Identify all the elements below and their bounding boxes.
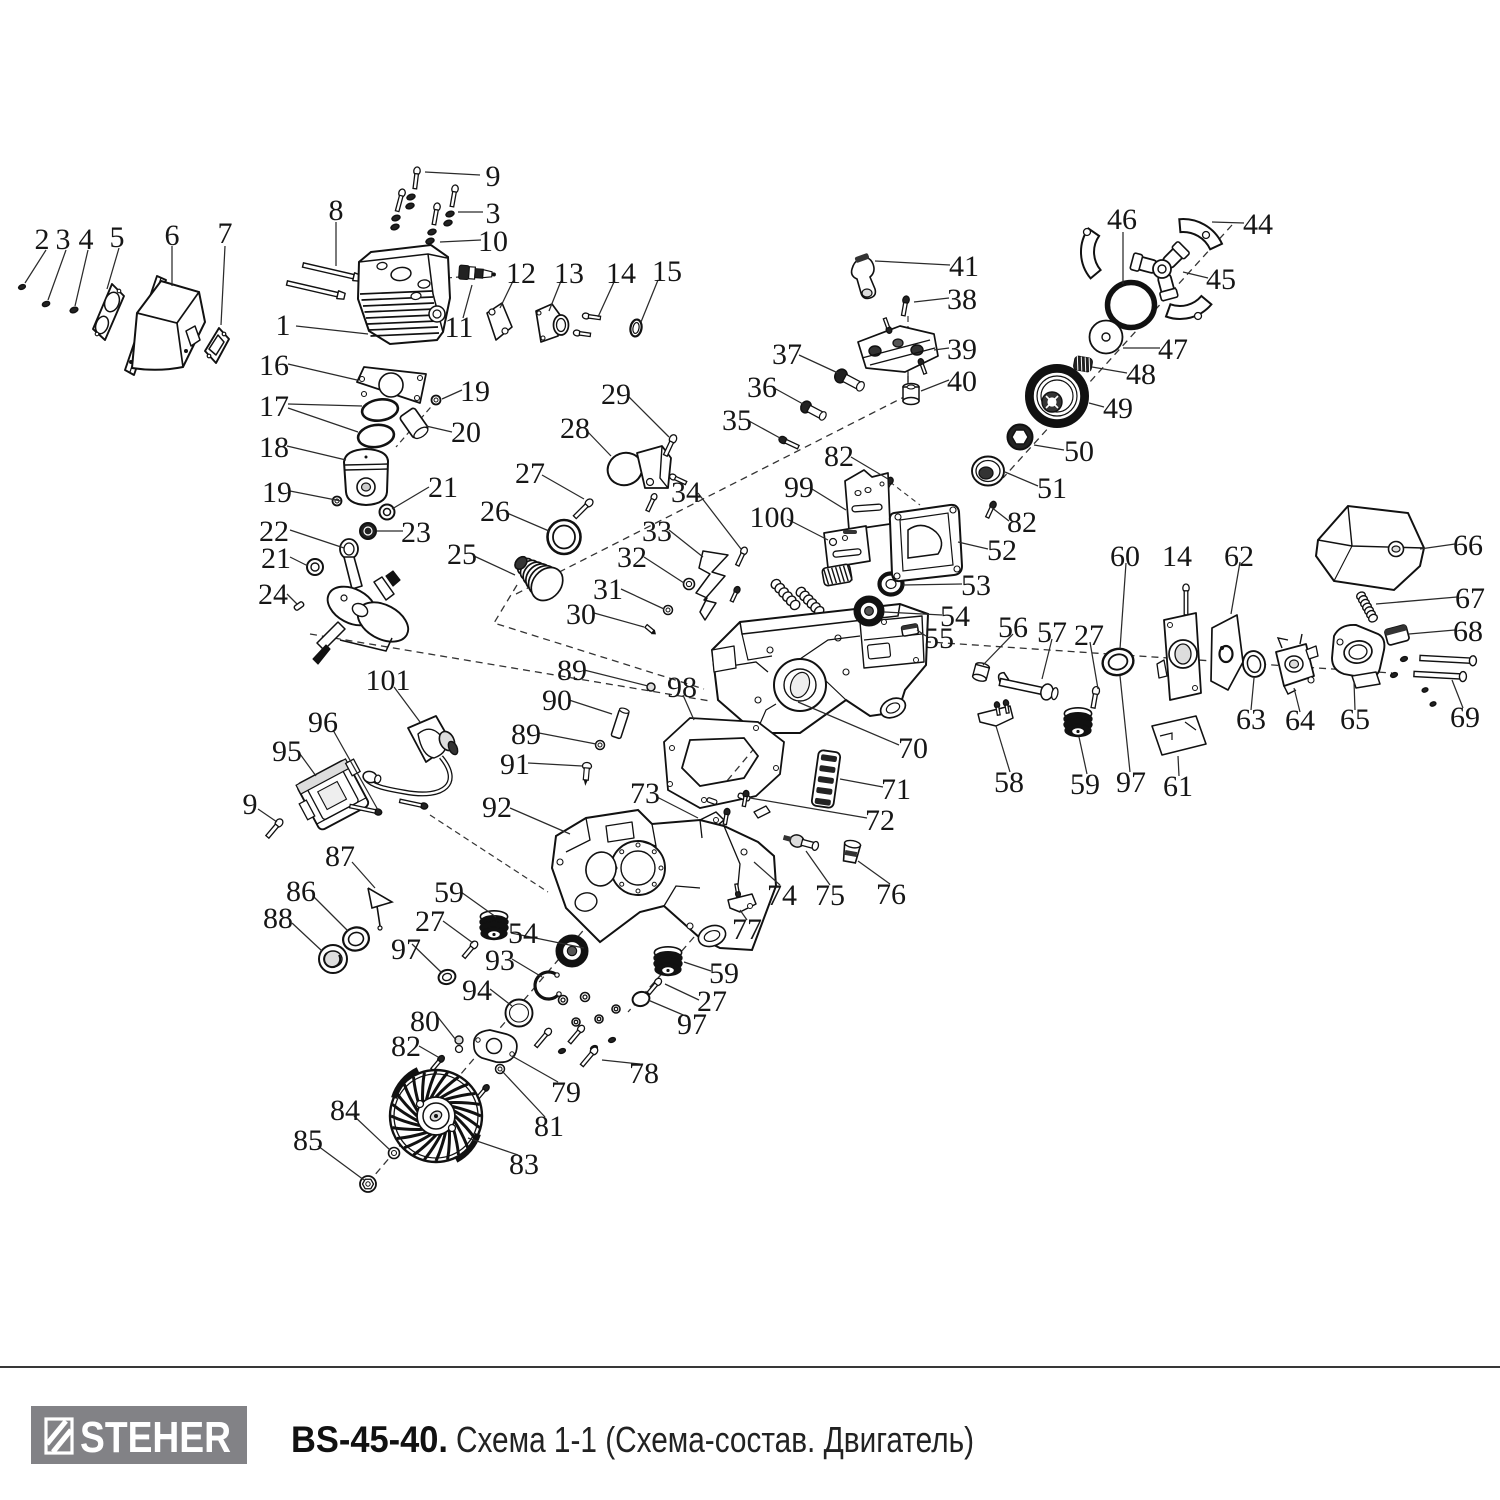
svg-text:53: 53: [961, 569, 991, 602]
svg-text:89: 89: [511, 718, 541, 751]
svg-text:99: 99: [784, 471, 814, 504]
svg-text:76: 76: [876, 878, 906, 911]
svg-text:85: 85: [293, 1124, 323, 1157]
svg-text:9: 9: [243, 788, 258, 821]
svg-text:34: 34: [671, 476, 701, 509]
svg-text:65: 65: [1340, 703, 1370, 736]
svg-text:9: 9: [486, 160, 501, 193]
svg-text:101: 101: [366, 664, 411, 697]
svg-text:1: 1: [276, 309, 291, 342]
svg-text:15: 15: [652, 255, 682, 288]
svg-text:11: 11: [445, 311, 474, 344]
svg-text:25: 25: [447, 538, 477, 571]
svg-text:91: 91: [500, 748, 530, 781]
svg-text:89: 89: [557, 654, 587, 687]
svg-text:41: 41: [949, 250, 979, 283]
svg-text:51: 51: [1037, 472, 1067, 505]
svg-text:58: 58: [994, 766, 1024, 799]
svg-text:71: 71: [881, 773, 911, 806]
svg-text:97: 97: [1116, 766, 1146, 799]
svg-text:55: 55: [924, 622, 954, 655]
svg-text:8: 8: [329, 194, 344, 227]
svg-text:66: 66: [1453, 529, 1483, 562]
svg-text:47: 47: [1158, 333, 1188, 366]
svg-text:78: 78: [629, 1057, 659, 1090]
svg-text:6: 6: [165, 219, 180, 252]
svg-text:63: 63: [1236, 703, 1266, 736]
svg-text:23: 23: [401, 516, 431, 549]
svg-text:10: 10: [478, 225, 508, 258]
svg-text:83: 83: [509, 1148, 539, 1181]
svg-text:17: 17: [259, 390, 289, 423]
svg-text:27: 27: [1074, 619, 1104, 652]
svg-text:19: 19: [460, 375, 490, 408]
svg-text:14: 14: [606, 257, 636, 290]
svg-text:82: 82: [824, 440, 854, 473]
svg-text:7: 7: [218, 217, 233, 250]
svg-text:31: 31: [593, 573, 623, 606]
svg-text:61: 61: [1163, 770, 1193, 803]
svg-text:70: 70: [898, 732, 928, 765]
svg-text:16: 16: [259, 349, 289, 382]
svg-text:82: 82: [391, 1030, 421, 1063]
svg-text:50: 50: [1064, 435, 1094, 468]
svg-text:100: 100: [750, 501, 795, 534]
svg-text:18: 18: [259, 431, 289, 464]
svg-text:79: 79: [551, 1076, 581, 1109]
svg-text:56: 56: [998, 611, 1028, 644]
svg-text:21: 21: [261, 542, 291, 575]
svg-text:75: 75: [815, 879, 845, 912]
svg-text:77: 77: [732, 913, 762, 946]
svg-text:36: 36: [747, 371, 777, 404]
svg-text:45: 45: [1206, 263, 1236, 296]
svg-text:33: 33: [642, 515, 672, 548]
svg-text:24: 24: [258, 578, 288, 611]
svg-text:37: 37: [772, 338, 802, 371]
svg-text:35: 35: [722, 404, 752, 437]
svg-text:82: 82: [1007, 506, 1037, 539]
svg-text:88: 88: [263, 902, 293, 935]
svg-text:4: 4: [79, 223, 94, 256]
svg-text:27: 27: [515, 457, 545, 490]
svg-text:67: 67: [1455, 582, 1485, 615]
svg-text:74: 74: [767, 879, 797, 912]
svg-text:BS-45-40.: BS-45-40.: [291, 1419, 448, 1460]
svg-text:60: 60: [1110, 540, 1140, 573]
svg-text:84: 84: [330, 1094, 360, 1127]
svg-text:94: 94: [462, 974, 492, 1007]
svg-text:95: 95: [272, 735, 302, 768]
svg-text:68: 68: [1453, 615, 1483, 648]
svg-text:26: 26: [480, 495, 510, 528]
svg-text:38: 38: [947, 283, 977, 316]
svg-text:14: 14: [1162, 540, 1192, 573]
svg-text:49: 49: [1103, 392, 1133, 425]
svg-text:19: 19: [262, 476, 292, 509]
svg-text:5: 5: [110, 221, 125, 254]
svg-text:28: 28: [560, 412, 590, 445]
svg-text:27: 27: [697, 985, 727, 1018]
svg-text:64: 64: [1285, 704, 1315, 737]
svg-text:92: 92: [482, 791, 512, 824]
svg-text:13: 13: [554, 257, 584, 290]
svg-text:44: 44: [1243, 208, 1273, 241]
svg-text:87: 87: [325, 840, 355, 873]
svg-text:39: 39: [947, 333, 977, 366]
svg-text:46: 46: [1107, 203, 1137, 236]
svg-text:29: 29: [601, 378, 631, 411]
svg-text:73: 73: [630, 777, 660, 810]
svg-text:40: 40: [947, 365, 977, 398]
svg-text:72: 72: [865, 804, 895, 837]
svg-text:48: 48: [1126, 358, 1156, 391]
svg-text:96: 96: [308, 706, 338, 739]
svg-text:27: 27: [415, 905, 445, 938]
svg-text:98: 98: [667, 671, 697, 704]
svg-text:57: 57: [1037, 616, 1067, 649]
svg-text:54: 54: [508, 917, 538, 950]
svg-text:30: 30: [566, 598, 596, 631]
svg-text:69: 69: [1450, 701, 1480, 734]
svg-text:81: 81: [534, 1110, 564, 1143]
svg-text:21: 21: [428, 471, 458, 504]
svg-text:12: 12: [506, 257, 536, 290]
svg-text:62: 62: [1224, 540, 1254, 573]
svg-text:2: 2: [35, 223, 50, 256]
svg-text:20: 20: [451, 416, 481, 449]
svg-text:90: 90: [542, 684, 572, 717]
svg-text:Схема 1-1 (Схема-состав. Двига: Схема 1-1 (Схема-состав. Двигатель): [456, 1419, 974, 1460]
svg-text:3: 3: [56, 223, 71, 256]
svg-text:59: 59: [1070, 768, 1100, 801]
svg-text:STEHER: STEHER: [80, 1413, 231, 1462]
